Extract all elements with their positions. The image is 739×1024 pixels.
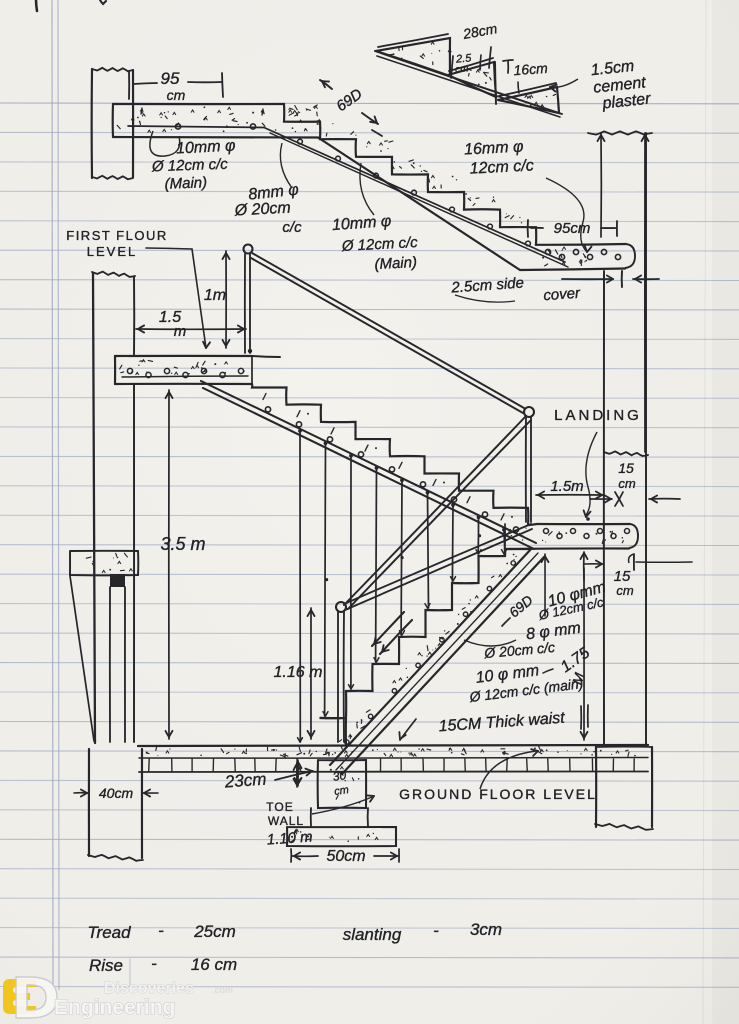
- svg-text:.com: .com: [212, 985, 233, 995]
- svg-text:50cm: 50cm: [326, 848, 365, 865]
- svg-text:-: -: [433, 921, 439, 940]
- svg-text:-: -: [158, 921, 164, 940]
- svg-text:c/c: c/c: [282, 219, 302, 236]
- svg-text:WALL: WALL: [268, 814, 304, 828]
- svg-text:95: 95: [161, 69, 180, 88]
- svg-text:FIRST FLOUR: FIRST FLOUR: [66, 228, 168, 243]
- svg-text:cover: cover: [543, 285, 582, 305]
- svg-text:1.16 m: 1.16 m: [274, 664, 323, 681]
- svg-text:TOE: TOE: [266, 800, 293, 814]
- svg-text:m: m: [174, 323, 187, 340]
- svg-text:40cm: 40cm: [99, 785, 134, 801]
- svg-text:-: -: [151, 954, 157, 973]
- svg-text:GROUND FLOOR LEVEL: GROUND FLOOR LEVEL: [399, 786, 597, 802]
- svg-text:30: 30: [332, 768, 347, 784]
- svg-text:23cm: 23cm: [223, 770, 267, 792]
- svg-text:(Main): (Main): [164, 174, 207, 192]
- svg-text:25cm: 25cm: [193, 922, 236, 941]
- svg-text:15: 15: [618, 460, 634, 476]
- svg-text:slanting: slanting: [343, 925, 402, 944]
- svg-text:(Main): (Main): [374, 254, 417, 273]
- svg-text:95cm: 95cm: [554, 220, 591, 237]
- svg-text:16cm: 16cm: [513, 60, 549, 78]
- svg-text:Ø 20cm: Ø 20cm: [233, 200, 291, 220]
- svg-text:cm: cm: [333, 784, 349, 798]
- svg-text:3.5 m: 3.5 m: [160, 534, 205, 554]
- svg-text:Discoveries: Discoveries: [104, 980, 194, 997]
- svg-text:cm: cm: [167, 87, 186, 103]
- svg-text:cm: cm: [455, 63, 469, 75]
- svg-text:LEVEL: LEVEL: [87, 244, 137, 259]
- svg-text:LANDING: LANDING: [554, 407, 642, 424]
- svg-text:10mm φ: 10mm φ: [176, 137, 236, 157]
- svg-text:Ø 12cm c/c: Ø 12cm c/c: [151, 156, 229, 176]
- svg-text:Engineering: Engineering: [54, 996, 175, 1019]
- svg-text:3cm: 3cm: [470, 920, 502, 939]
- svg-text:12cm c/c: 12cm c/c: [469, 157, 534, 177]
- svg-text:cm: cm: [616, 583, 634, 598]
- svg-text:1.5m: 1.5m: [550, 478, 583, 495]
- svg-text:Tread: Tread: [87, 923, 131, 942]
- svg-text:1.10 m: 1.10 m: [266, 828, 313, 848]
- svg-text:cm: cm: [618, 476, 636, 491]
- svg-text:16mm φ: 16mm φ: [464, 138, 524, 158]
- svg-text:Rise: Rise: [89, 956, 123, 975]
- svg-text:1m: 1m: [204, 287, 226, 304]
- svg-text:16 cm: 16 cm: [191, 955, 237, 974]
